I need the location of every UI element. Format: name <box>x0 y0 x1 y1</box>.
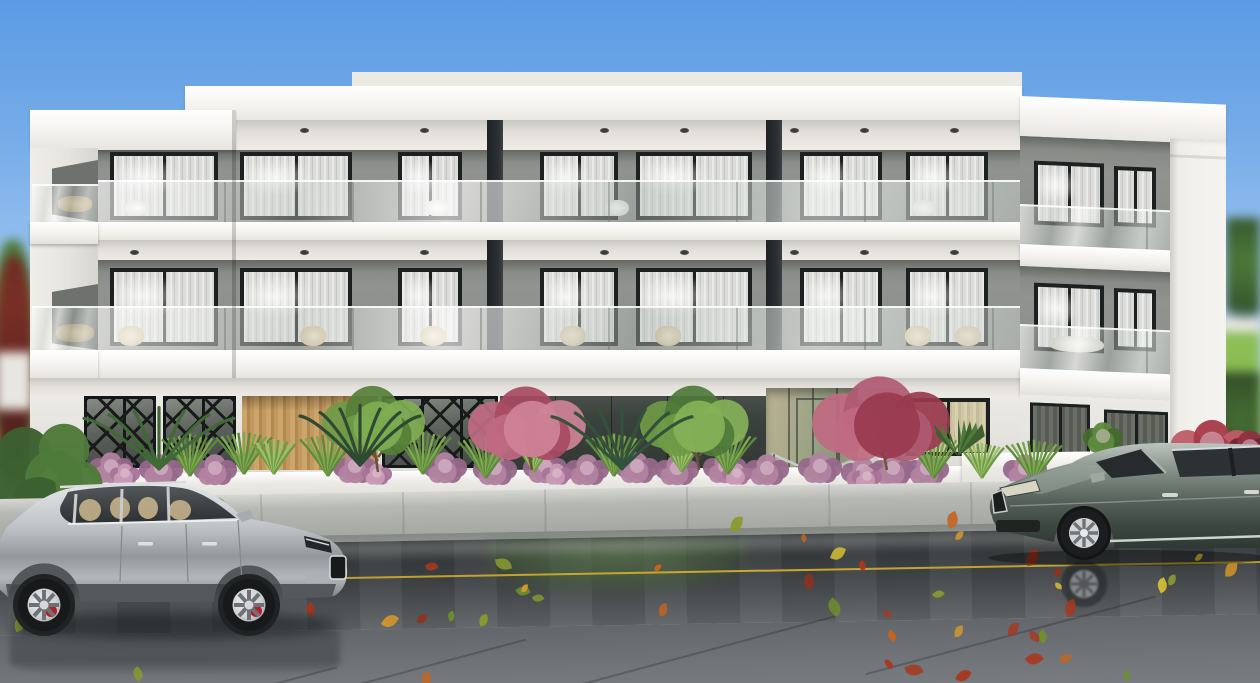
palm-fronds <box>552 402 692 476</box>
glass-balustrade <box>98 180 1022 224</box>
left-wing-fascia <box>30 110 236 150</box>
ceiling-downlight <box>950 128 959 133</box>
ceiling-downlight <box>790 128 799 133</box>
ceiling-downlight <box>860 250 869 255</box>
left-wing-glass-lower <box>32 306 98 352</box>
scene <box>0 0 1260 683</box>
palm-fronds <box>300 402 420 472</box>
suv-license-plate <box>306 572 328 583</box>
ornamental-grass <box>252 436 296 474</box>
sedan-door-handle <box>1162 493 1178 497</box>
ceiling-downlight <box>130 250 139 255</box>
left-wing-slab-upper <box>30 222 98 244</box>
sedan-side-windows <box>1172 446 1260 477</box>
dark-sedan <box>978 436 1260 581</box>
balcony-soffit <box>98 120 1022 150</box>
ceiling-downlight <box>600 128 609 133</box>
background-right-tree <box>1226 218 1260 328</box>
suv-door-handle <box>138 542 153 546</box>
glass-balustrade <box>98 306 1022 352</box>
left-wing-glass-upper <box>32 184 98 226</box>
balcony-soffit <box>98 240 1022 262</box>
ceiling-downlight <box>600 250 609 255</box>
main-roof-fascia <box>185 86 1022 124</box>
agave-plant <box>934 416 982 456</box>
suv-front-wheel <box>218 574 280 636</box>
left-wing-slab-lower <box>30 350 98 380</box>
floor-slab <box>98 350 1022 380</box>
ceiling-downlight <box>680 250 689 255</box>
ceiling-downlight <box>300 250 309 255</box>
silver-suv <box>0 472 358 640</box>
ceiling-downlight <box>300 128 309 133</box>
background-left-wall <box>0 352 32 410</box>
left-wing-edge-shadow <box>232 110 236 380</box>
floor-slab <box>98 222 1022 242</box>
sedan-shadow <box>988 550 1260 566</box>
palm-fronds <box>84 404 234 476</box>
suv-grille <box>330 556 346 579</box>
ceiling-downlight <box>950 250 959 255</box>
ceiling-downlight <box>420 250 429 255</box>
sedan-front-wheel <box>1057 506 1111 560</box>
sedan-lower-intake <box>996 520 1040 532</box>
ceiling-downlight <box>420 128 429 133</box>
ceiling-downlight <box>860 128 869 133</box>
suv-door-handle <box>202 542 217 546</box>
suv-rear-wheel <box>13 574 75 636</box>
sedan-door-handle <box>1244 490 1259 494</box>
ceiling-downlight <box>790 250 799 255</box>
ceiling-downlight <box>680 128 689 133</box>
